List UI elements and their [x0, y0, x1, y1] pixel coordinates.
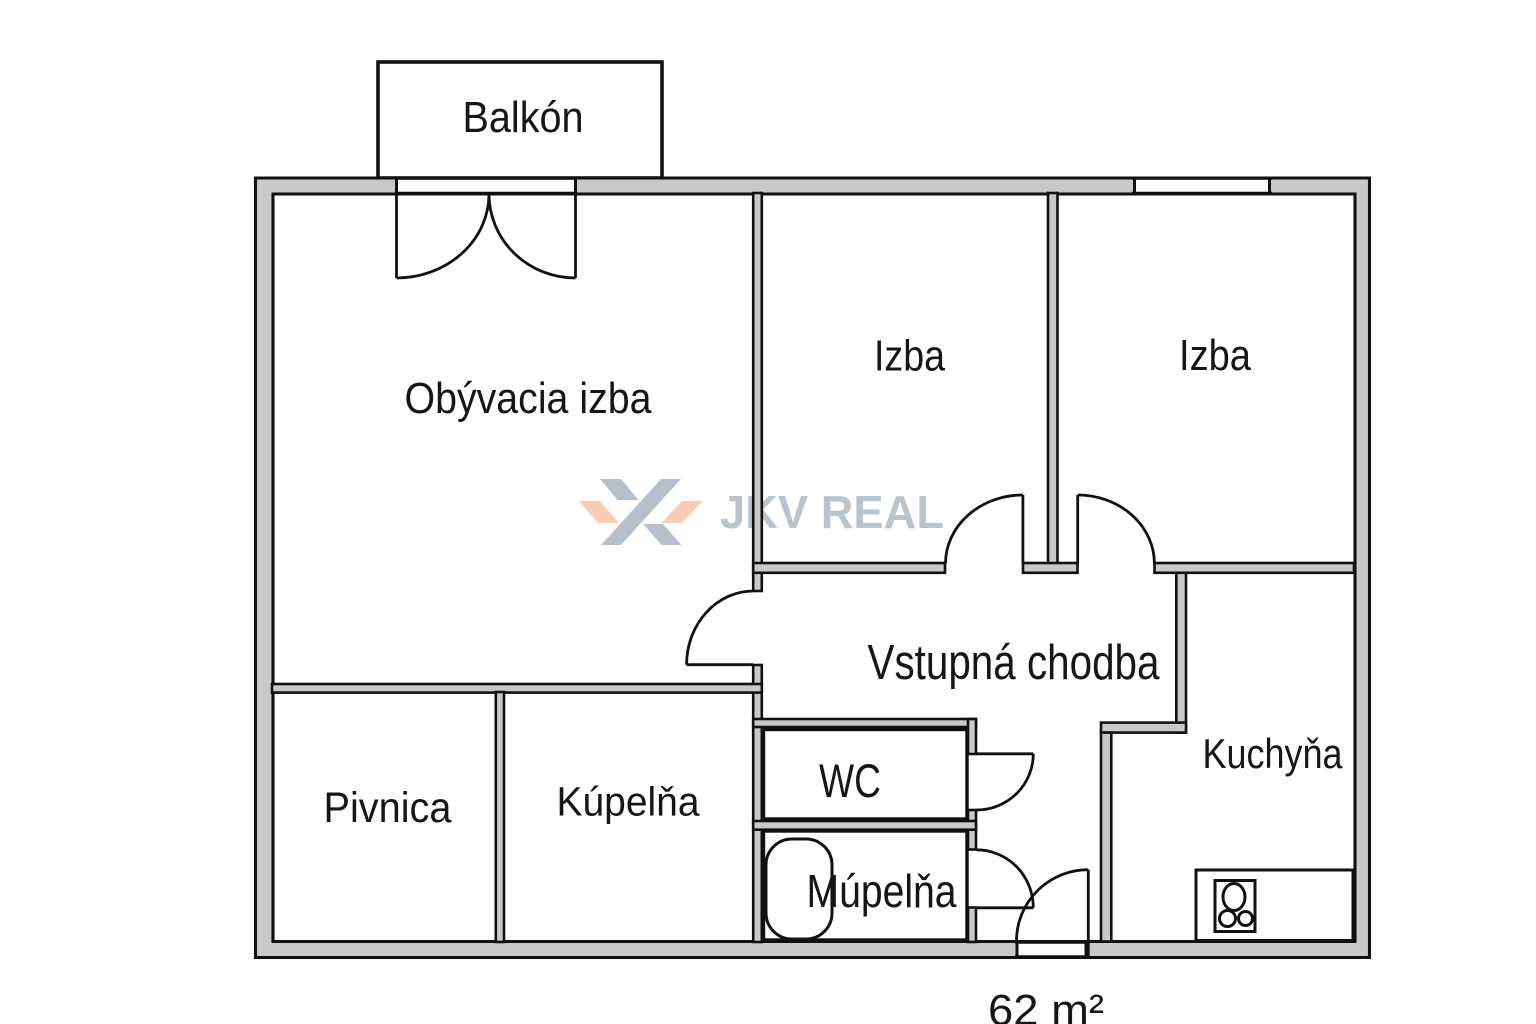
- svg-text:Balkón: Balkón: [463, 93, 584, 142]
- svg-text:Obývacia izba: Obývacia izba: [405, 374, 652, 423]
- svg-text:Vstupná chodba: Vstupná chodba: [868, 636, 1161, 690]
- svg-text:WC: WC: [819, 754, 881, 807]
- svg-text:Kúpelňa: Kúpelňa: [557, 779, 700, 825]
- svg-text:Izba: Izba: [874, 332, 945, 381]
- svg-text:Izba: Izba: [1179, 331, 1251, 380]
- svg-text:Múpelňa: Múpelňa: [807, 865, 957, 917]
- svg-text:62 m²: 62 m²: [988, 986, 1104, 1024]
- svg-text:Kuchyňa: Kuchyňa: [1203, 730, 1344, 777]
- svg-text:Pivnica: Pivnica: [324, 784, 452, 832]
